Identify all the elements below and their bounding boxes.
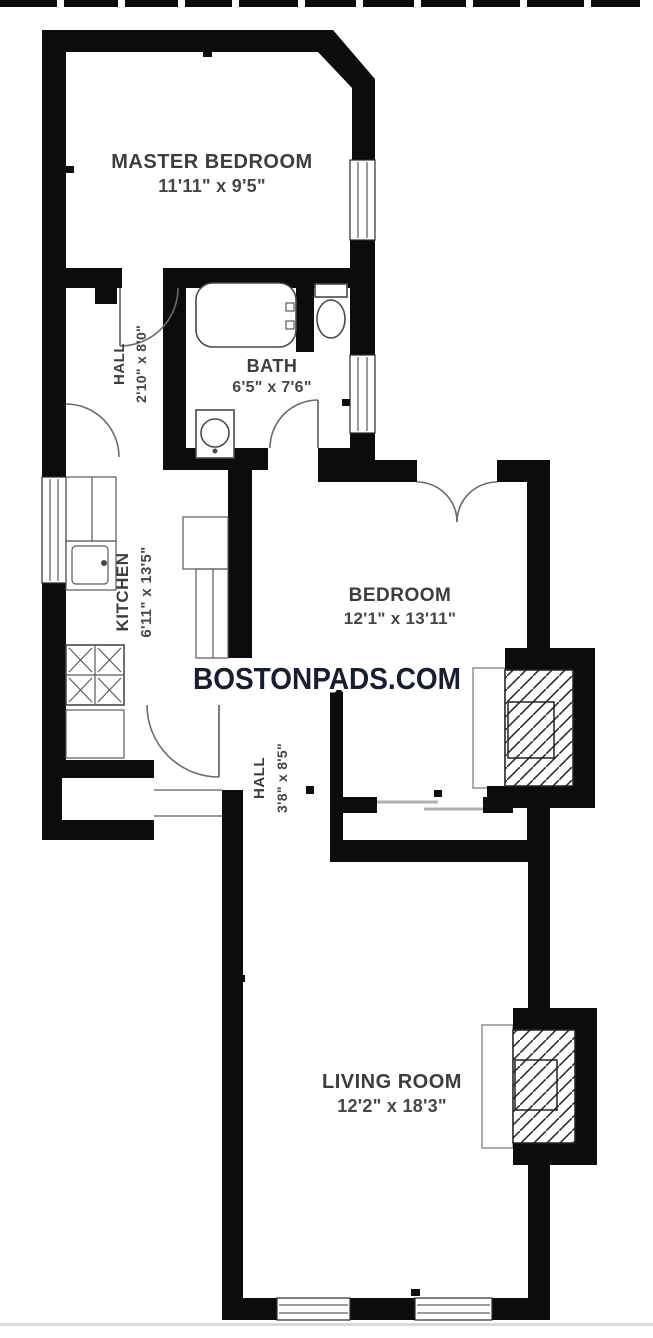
window-bath-right xyxy=(350,355,375,433)
hall-lower-dims: 3'8" x 8'5" xyxy=(274,743,290,813)
floor-plan-page: MASTER BEDROOM 11'11" x 9'5" HALL 2'10" … xyxy=(0,0,653,1338)
room-hall-upper: HALL 2'10" x 8'0" xyxy=(111,325,149,403)
top-cropped-wall-strip xyxy=(0,0,640,7)
bostonpads-watermark: BOSTONPADS.COM xyxy=(193,661,461,696)
room-master-bedroom: MASTER BEDROOM 11'11" x 9'5" xyxy=(111,151,312,196)
master-bedroom-dims: 11'11" x 9'5" xyxy=(158,176,266,196)
room-hall-lower: HALL 3'8" x 8'5" xyxy=(251,743,290,813)
door-bedroom-closet-slider xyxy=(377,797,483,813)
entry-closet-threshold xyxy=(154,790,222,816)
door-bath xyxy=(270,400,318,448)
kitchen-dims: 6'11" x 13'5" xyxy=(138,546,155,637)
window-kitchen-left xyxy=(42,477,66,583)
living-room-dims: 12'2" x 18'3" xyxy=(337,1096,447,1116)
hall-lower-name: HALL xyxy=(251,757,268,799)
room-kitchen: KITCHEN 6'11" x 13'5" xyxy=(113,546,155,637)
bath-name: BATH xyxy=(247,356,298,376)
window-living-bottom-right xyxy=(415,1298,492,1320)
room-bath: BATH 6'5" x 7'6" xyxy=(232,356,311,396)
bath-dims: 6'5" x 7'6" xyxy=(232,379,311,396)
floor-plan-svg: MASTER BEDROOM 11'11" x 9'5" HALL 2'10" … xyxy=(0,0,653,1338)
window-master-right xyxy=(350,160,375,240)
door-hall-closet xyxy=(66,404,119,457)
bedroom-name: BEDROOM xyxy=(349,585,452,606)
living-room-fireplace-icon xyxy=(482,1008,597,1165)
window-living-bottom-left xyxy=(277,1298,350,1320)
bedroom-fireplace-icon xyxy=(473,648,595,808)
room-living-room: LIVING ROOM 12'2" x 18'3" xyxy=(322,1071,462,1116)
stove-icon xyxy=(66,645,124,705)
door-bedroom-french xyxy=(417,482,497,522)
living-room-name: LIVING ROOM xyxy=(322,1071,462,1093)
kitchen-name: KITCHEN xyxy=(113,552,132,631)
door-kitchen xyxy=(147,705,219,777)
hall-upper-name: HALL xyxy=(111,343,128,385)
master-bedroom-name: MASTER BEDROOM xyxy=(111,151,312,173)
hall-upper-dims: 2'10" x 8'0" xyxy=(133,325,149,403)
toilet-icon xyxy=(315,284,347,338)
bathtub-icon xyxy=(196,283,296,347)
kitchen-island xyxy=(183,517,228,658)
sink-icon xyxy=(196,410,234,458)
bedroom-dims: 12'1" x 13'11" xyxy=(344,609,457,628)
room-bedroom: BEDROOM 12'1" x 13'11" xyxy=(344,585,457,628)
